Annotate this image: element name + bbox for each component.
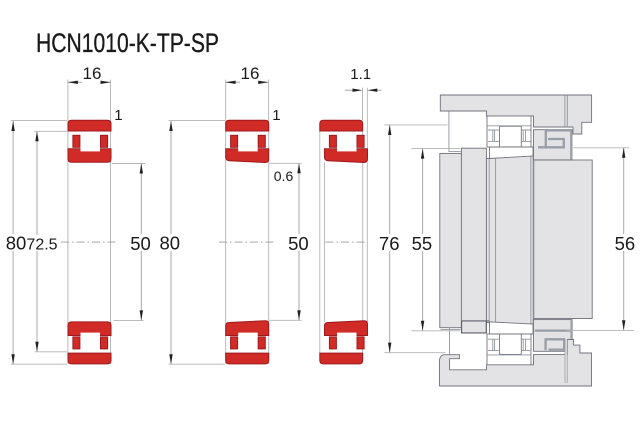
svg-text:80: 80 — [160, 233, 181, 254]
svg-text:56: 56 — [615, 233, 636, 254]
svg-text:55: 55 — [412, 233, 433, 254]
svg-text:72.5: 72.5 — [26, 237, 57, 254]
svg-text:HCN1010-K-TP-SP: HCN1010-K-TP-SP — [36, 28, 219, 58]
svg-text:0.6: 0.6 — [274, 168, 294, 184]
svg-text:1: 1 — [272, 107, 280, 124]
svg-text:16: 16 — [241, 64, 260, 83]
svg-text:50: 50 — [288, 233, 309, 254]
svg-text:80: 80 — [6, 233, 27, 254]
svg-text:50: 50 — [130, 233, 151, 254]
svg-text:1: 1 — [114, 107, 122, 124]
svg-text:16: 16 — [83, 64, 102, 83]
svg-text:1.1: 1.1 — [350, 66, 371, 83]
svg-text:76: 76 — [379, 233, 400, 254]
